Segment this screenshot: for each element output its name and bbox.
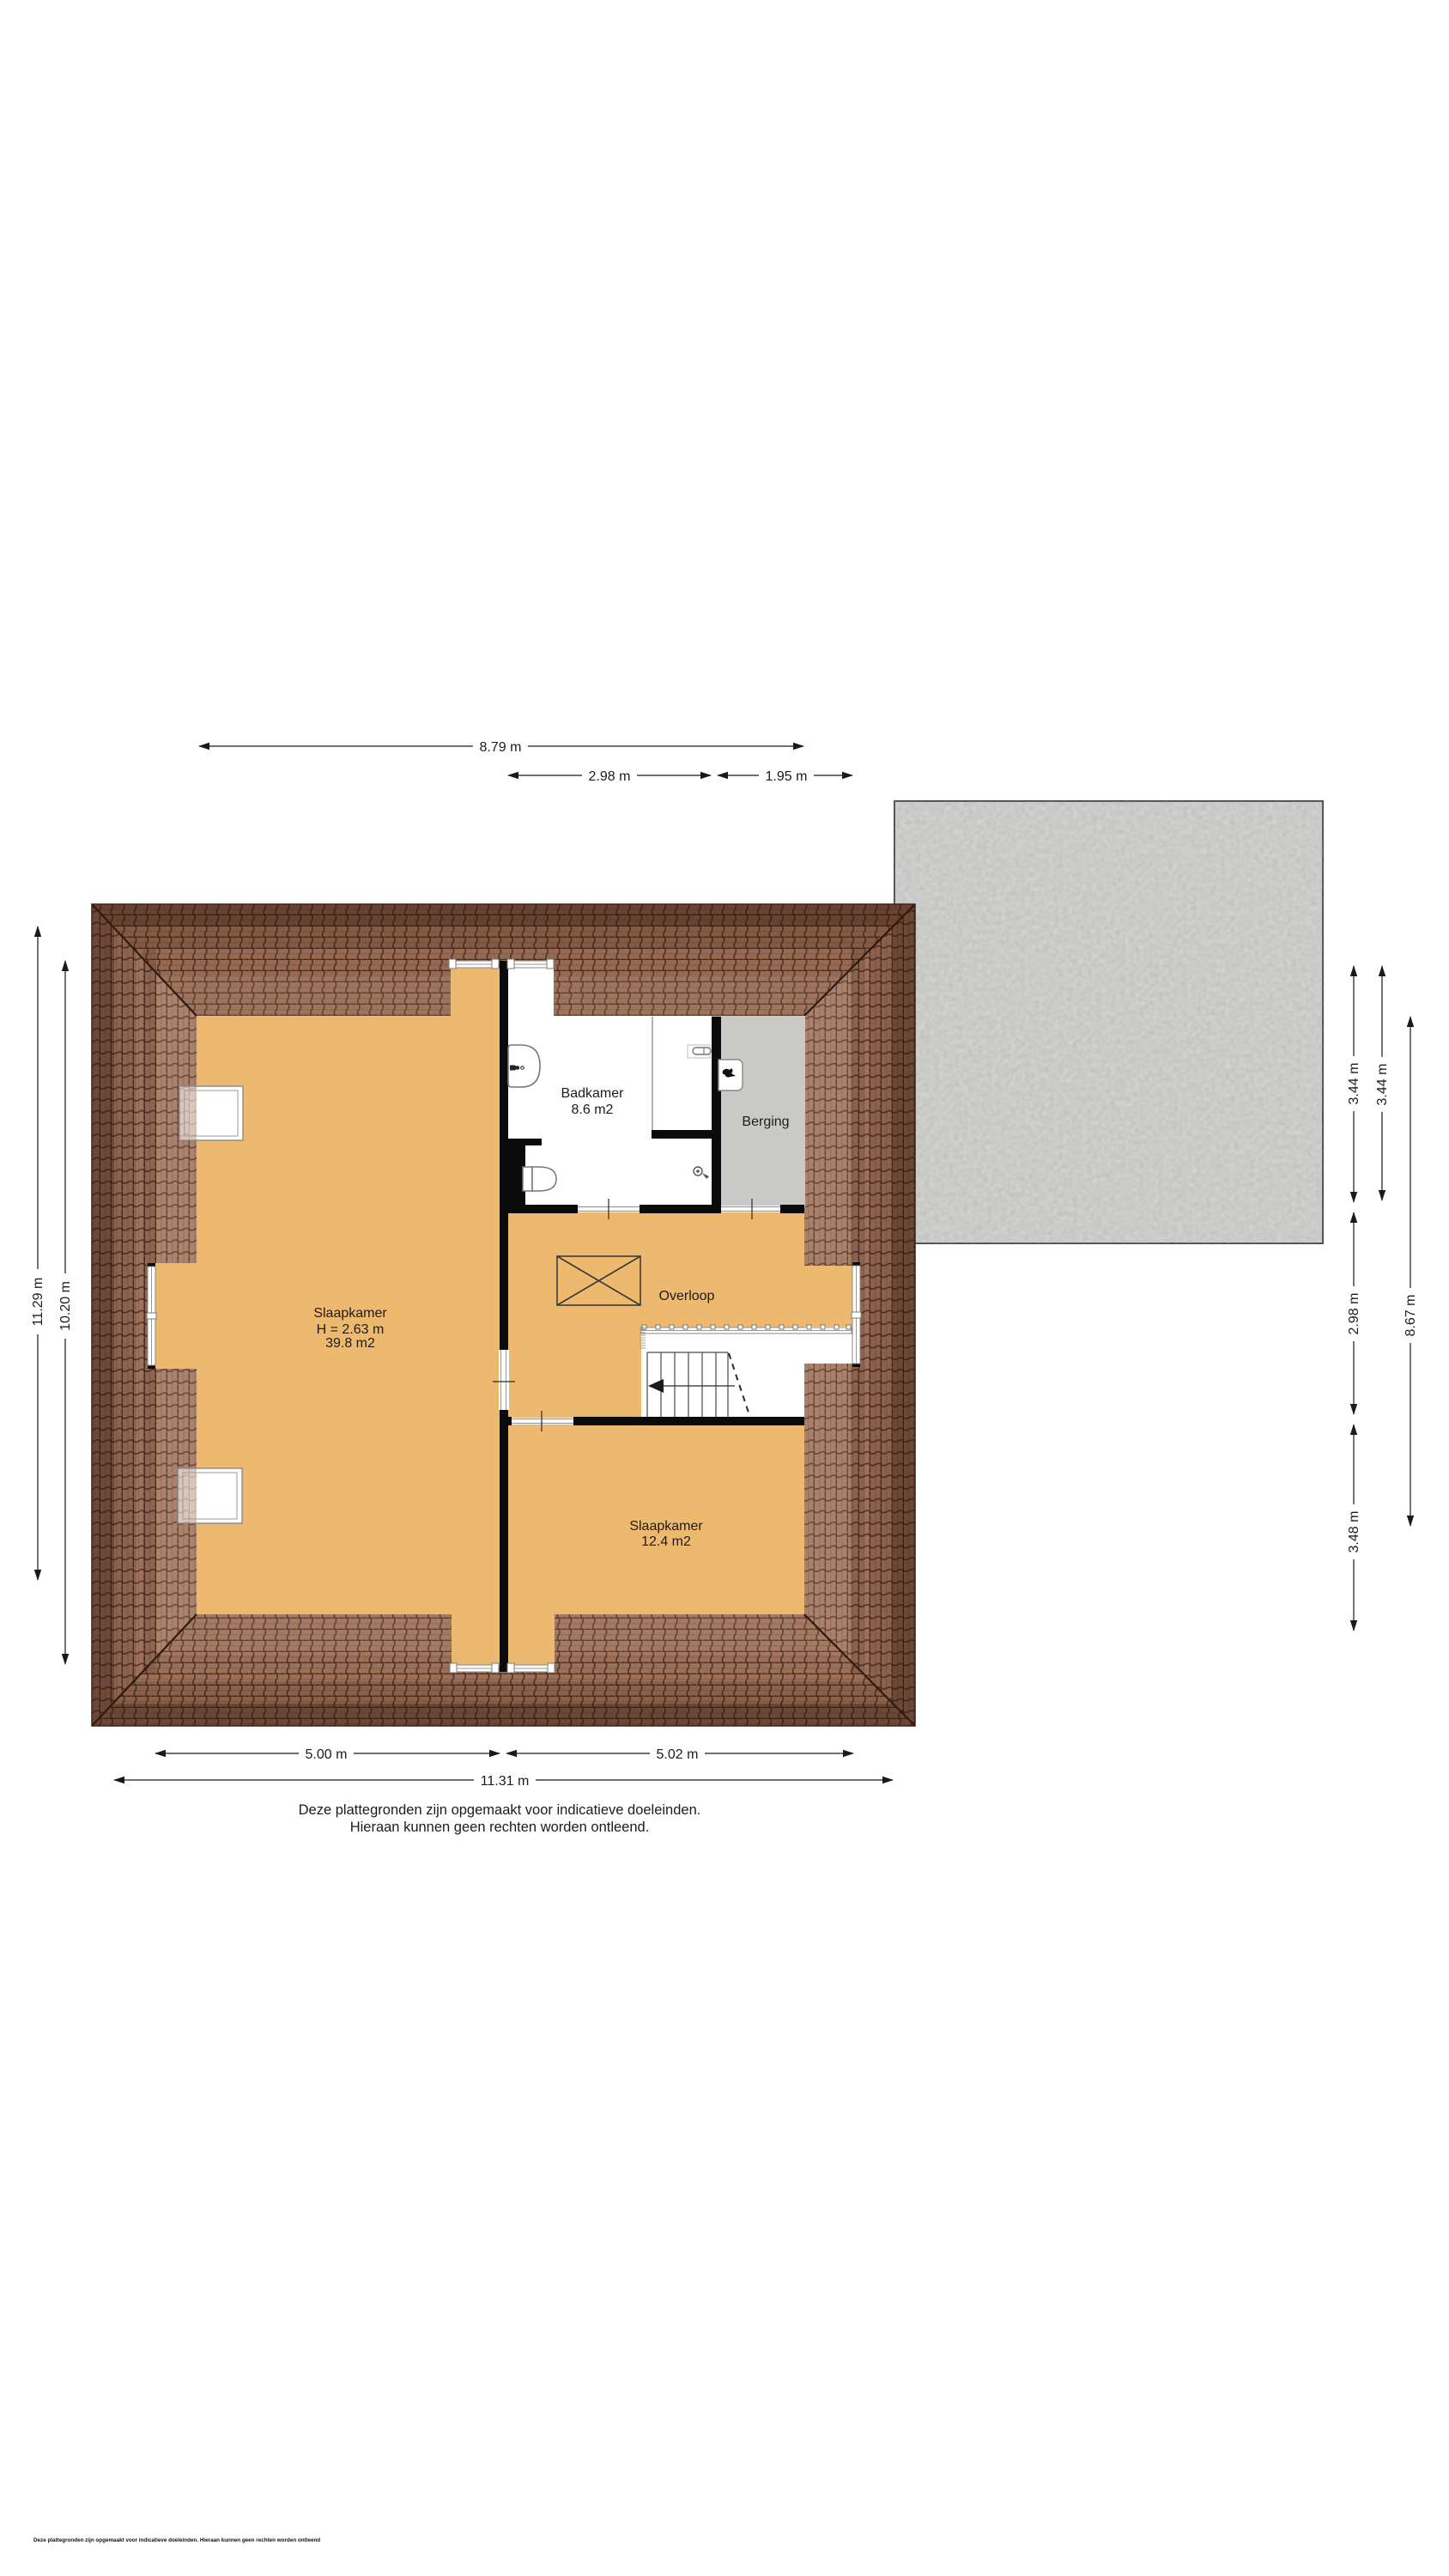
svg-text:Badkamer: Badkamer (561, 1086, 625, 1101)
svg-text:Overloop: Overloop (659, 1289, 715, 1303)
svg-text:5.00 m: 5.00 m (306, 1747, 348, 1762)
svg-text:10.20 m: 10.20 m (58, 1281, 73, 1331)
svg-text:3.44 m: 3.44 m (1347, 1063, 1361, 1105)
svg-text:Hieraan kunnen geen rechten wo: Hieraan kunnen geen rechten worden ontle… (350, 1820, 650, 1835)
svg-text:Deze plattegronden zijn opgema: Deze plattegronden zijn opgemaakt voor i… (299, 1802, 701, 1818)
svg-text:3.48 m: 3.48 m (1347, 1511, 1361, 1553)
svg-text:3.44 m: 3.44 m (1375, 1064, 1390, 1106)
svg-text:Berging: Berging (742, 1115, 789, 1129)
svg-text:5.02 m: 5.02 m (657, 1747, 699, 1762)
svg-text:Slaapkamer: Slaapkamer (313, 1306, 387, 1321)
svg-text:1.95 m: 1.95 m (766, 769, 808, 784)
svg-text:2.98 m: 2.98 m (1347, 1293, 1361, 1335)
svg-text:2.98 m: 2.98 m (589, 769, 631, 784)
svg-text:11.31 m: 11.31 m (481, 1774, 530, 1789)
svg-text:8.67 m: 8.67 m (1404, 1295, 1418, 1337)
svg-text:Deze plattegronden zijn opgema: Deze plattegronden zijn opgemaakt voor i… (33, 2537, 320, 2543)
svg-text:12.4 m2: 12.4 m2 (641, 1534, 691, 1549)
svg-text:8.6 m2: 8.6 m2 (572, 1103, 614, 1117)
svg-text:8.79 m: 8.79 m (480, 740, 522, 755)
svg-text:39.8 m2: 39.8 m2 (325, 1336, 375, 1351)
svg-text:Slaapkamer: Slaapkamer (629, 1519, 703, 1534)
svg-text:H = 2.63 m: H = 2.63 m (317, 1322, 385, 1337)
svg-text:11.29 m: 11.29 m (31, 1278, 45, 1327)
